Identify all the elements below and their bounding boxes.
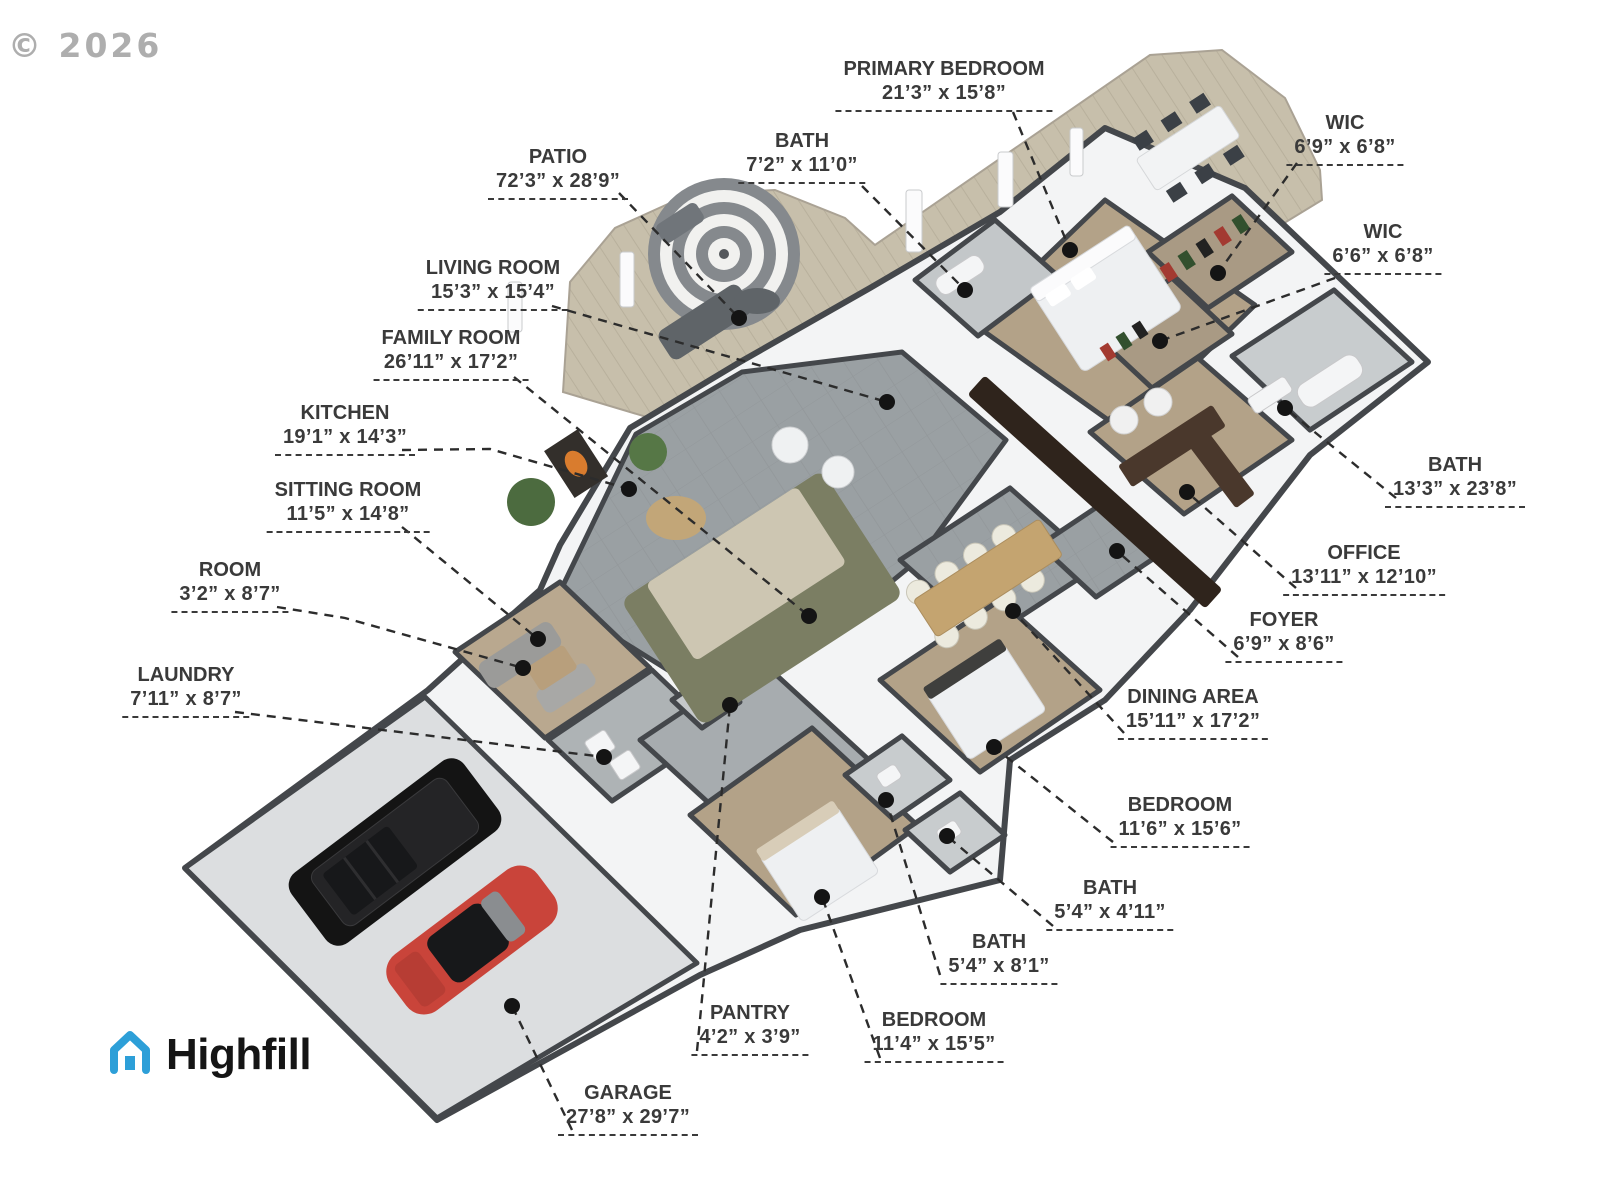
family-armchair <box>772 427 808 463</box>
floorplan-canvas: PRIMARY BEDROOM21’3” x 15’8”BATH7’2” x 1… <box>0 0 1600 1200</box>
plant <box>507 478 555 526</box>
plant-2 <box>629 433 667 471</box>
brand-name: Highfill <box>166 1030 311 1080</box>
house-icon <box>106 1028 154 1081</box>
coffee-table <box>646 496 706 540</box>
family-armchair-2 <box>822 456 854 488</box>
brand-logo: Highfill <box>106 1028 311 1081</box>
floorplan-3d-render <box>0 0 1600 1200</box>
copyright-stamp: © 2026 <box>8 26 162 65</box>
patio-table <box>734 288 780 314</box>
